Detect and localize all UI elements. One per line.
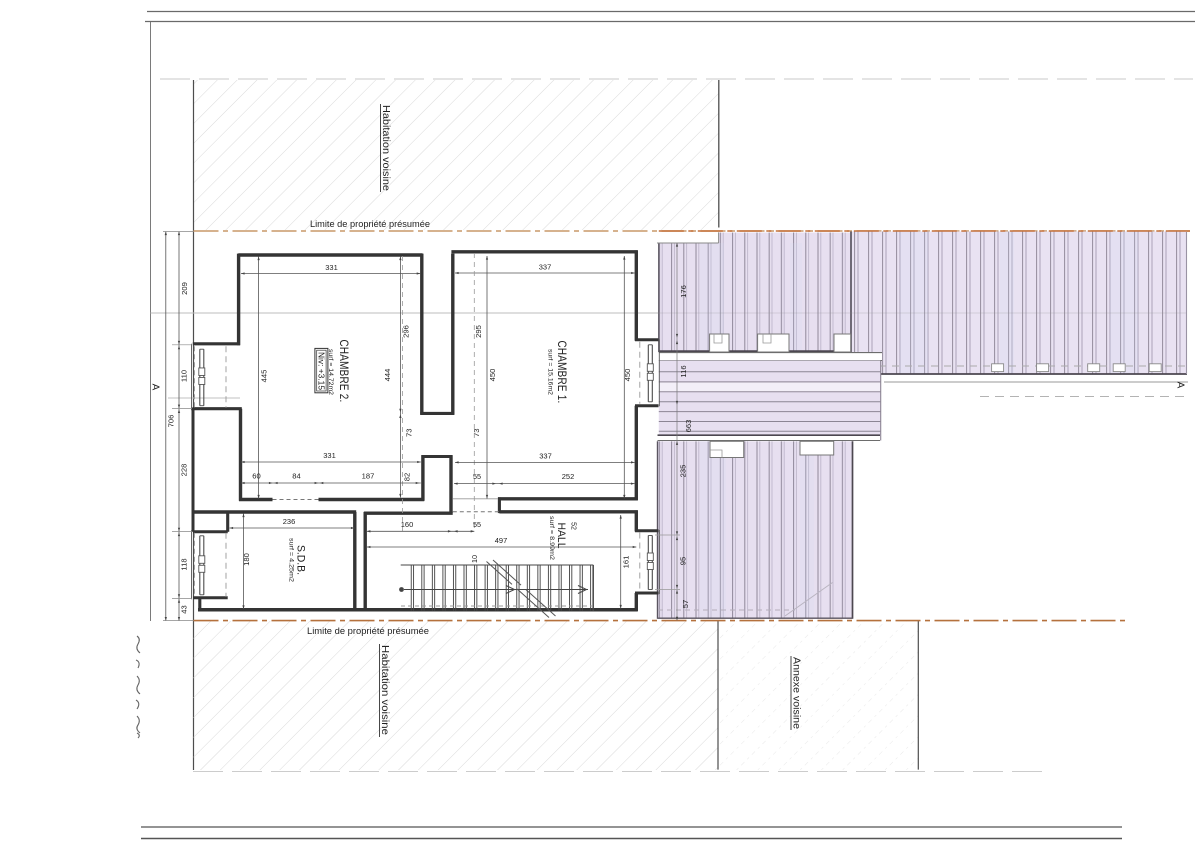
svg-text:52: 52 (570, 522, 577, 530)
svg-text:187: 187 (362, 472, 375, 481)
svg-text:Limite de propriété présumée: Limite de propriété présumée (307, 626, 429, 637)
svg-text:296: 296 (402, 325, 411, 338)
svg-text:252: 252 (562, 472, 575, 481)
svg-text:60: 60 (252, 472, 260, 481)
svg-text:450: 450 (488, 369, 497, 382)
svg-text:Limite de propriété présumée: Limite de propriété présumée (310, 219, 430, 229)
svg-text:450: 450 (623, 369, 632, 382)
svg-text:57: 57 (681, 600, 690, 608)
svg-text:HALL: HALL (555, 523, 567, 549)
svg-text:445: 445 (260, 370, 269, 383)
svg-text:A: A (1175, 382, 1186, 389)
svg-text:73: 73 (405, 429, 414, 437)
svg-text:116: 116 (679, 365, 688, 377)
svg-text:236: 236 (283, 517, 296, 526)
svg-text:444: 444 (383, 369, 392, 382)
svg-text:55: 55 (473, 472, 481, 481)
svg-text:337: 337 (539, 451, 552, 460)
svg-text:235: 235 (679, 465, 688, 478)
svg-text:Annexe voisine: Annexe voisine (791, 657, 803, 729)
svg-text:surf = 8.99m2: surf = 8.99m2 (548, 516, 555, 560)
svg-text:110: 110 (180, 370, 189, 382)
svg-text:73: 73 (472, 429, 481, 437)
svg-text:663: 663 (684, 420, 693, 433)
svg-text:706: 706 (167, 415, 176, 428)
svg-text:331: 331 (323, 451, 336, 460)
svg-text:Habitation voisine: Habitation voisine (379, 645, 391, 735)
svg-text:10: 10 (470, 555, 479, 563)
svg-text:CHAMBRE 1.: CHAMBRE 1. (555, 341, 569, 404)
svg-text:95: 95 (679, 557, 688, 565)
svg-text:295: 295 (474, 325, 483, 338)
svg-text:180: 180 (242, 553, 251, 566)
svg-text:84: 84 (292, 472, 300, 481)
svg-text:Niv: +3.15: Niv: +3.15 (317, 352, 326, 391)
svg-text:82: 82 (403, 473, 412, 481)
svg-text:161: 161 (622, 556, 631, 569)
svg-text:160: 160 (401, 520, 414, 529)
svg-text:CHAMBRE 2.: CHAMBRE 2. (337, 340, 351, 403)
svg-text:Habitation voisine: Habitation voisine (380, 105, 392, 191)
svg-text:surf = 15.16m2: surf = 15.16m2 (547, 349, 554, 395)
svg-text:118: 118 (180, 558, 189, 570)
svg-text:S.D.B.: S.D.B. (295, 545, 307, 575)
svg-text:55: 55 (473, 520, 481, 529)
svg-text:337: 337 (539, 263, 552, 272)
svg-text:497: 497 (495, 536, 508, 545)
svg-text:43: 43 (180, 605, 189, 613)
svg-text:209: 209 (180, 282, 189, 295)
svg-text:176: 176 (679, 285, 688, 298)
svg-text:331: 331 (325, 263, 338, 272)
svg-text:surf = 4.25m2: surf = 4.25m2 (288, 538, 295, 582)
svg-text:A: A (150, 384, 161, 391)
svg-text:228: 228 (180, 464, 189, 477)
